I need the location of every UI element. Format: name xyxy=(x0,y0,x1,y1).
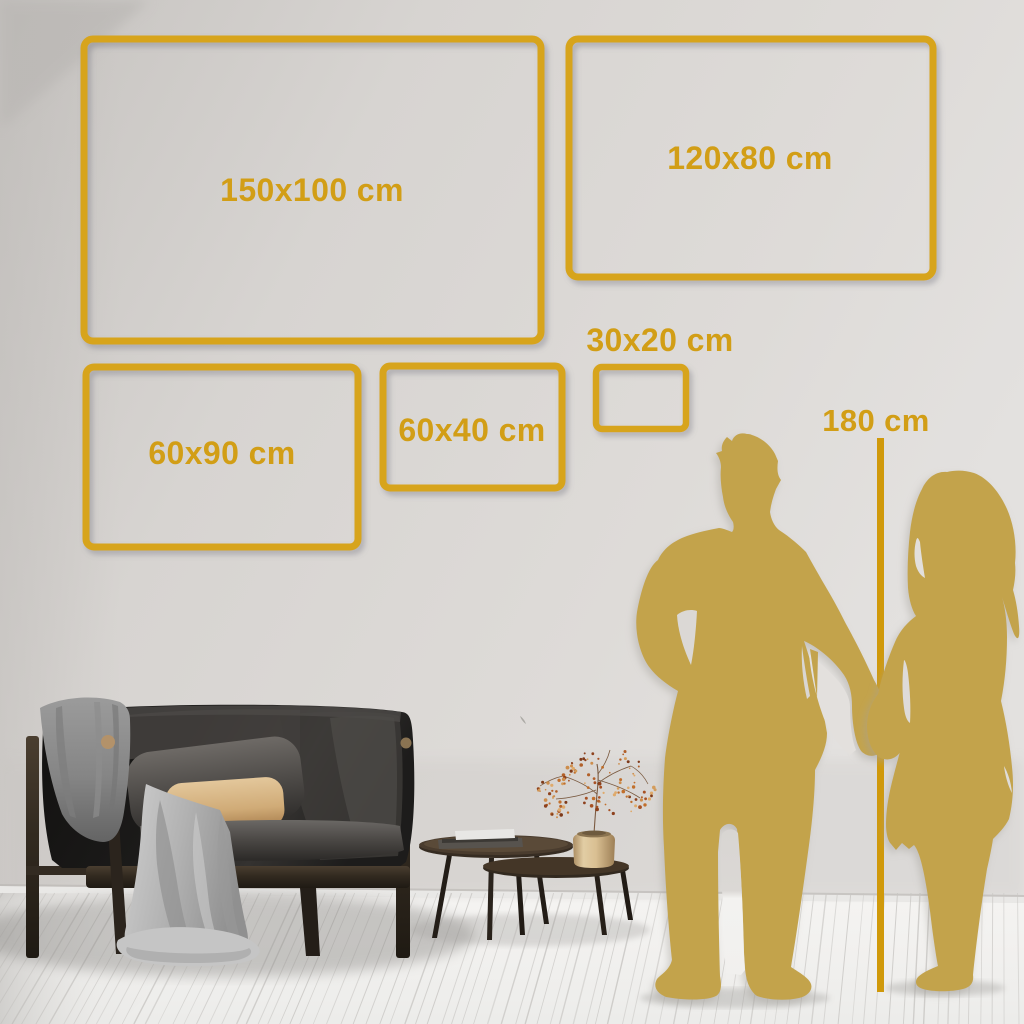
svg-text:120x80 cm: 120x80 cm xyxy=(667,140,833,176)
svg-text:30x20 cm: 30x20 cm xyxy=(586,322,733,358)
svg-text:60x90 cm: 60x90 cm xyxy=(148,435,295,471)
svg-text:60x40 cm: 60x40 cm xyxy=(398,412,545,448)
svg-text:180 cm: 180 cm xyxy=(822,403,930,438)
svg-text:150x100 cm: 150x100 cm xyxy=(220,172,404,208)
